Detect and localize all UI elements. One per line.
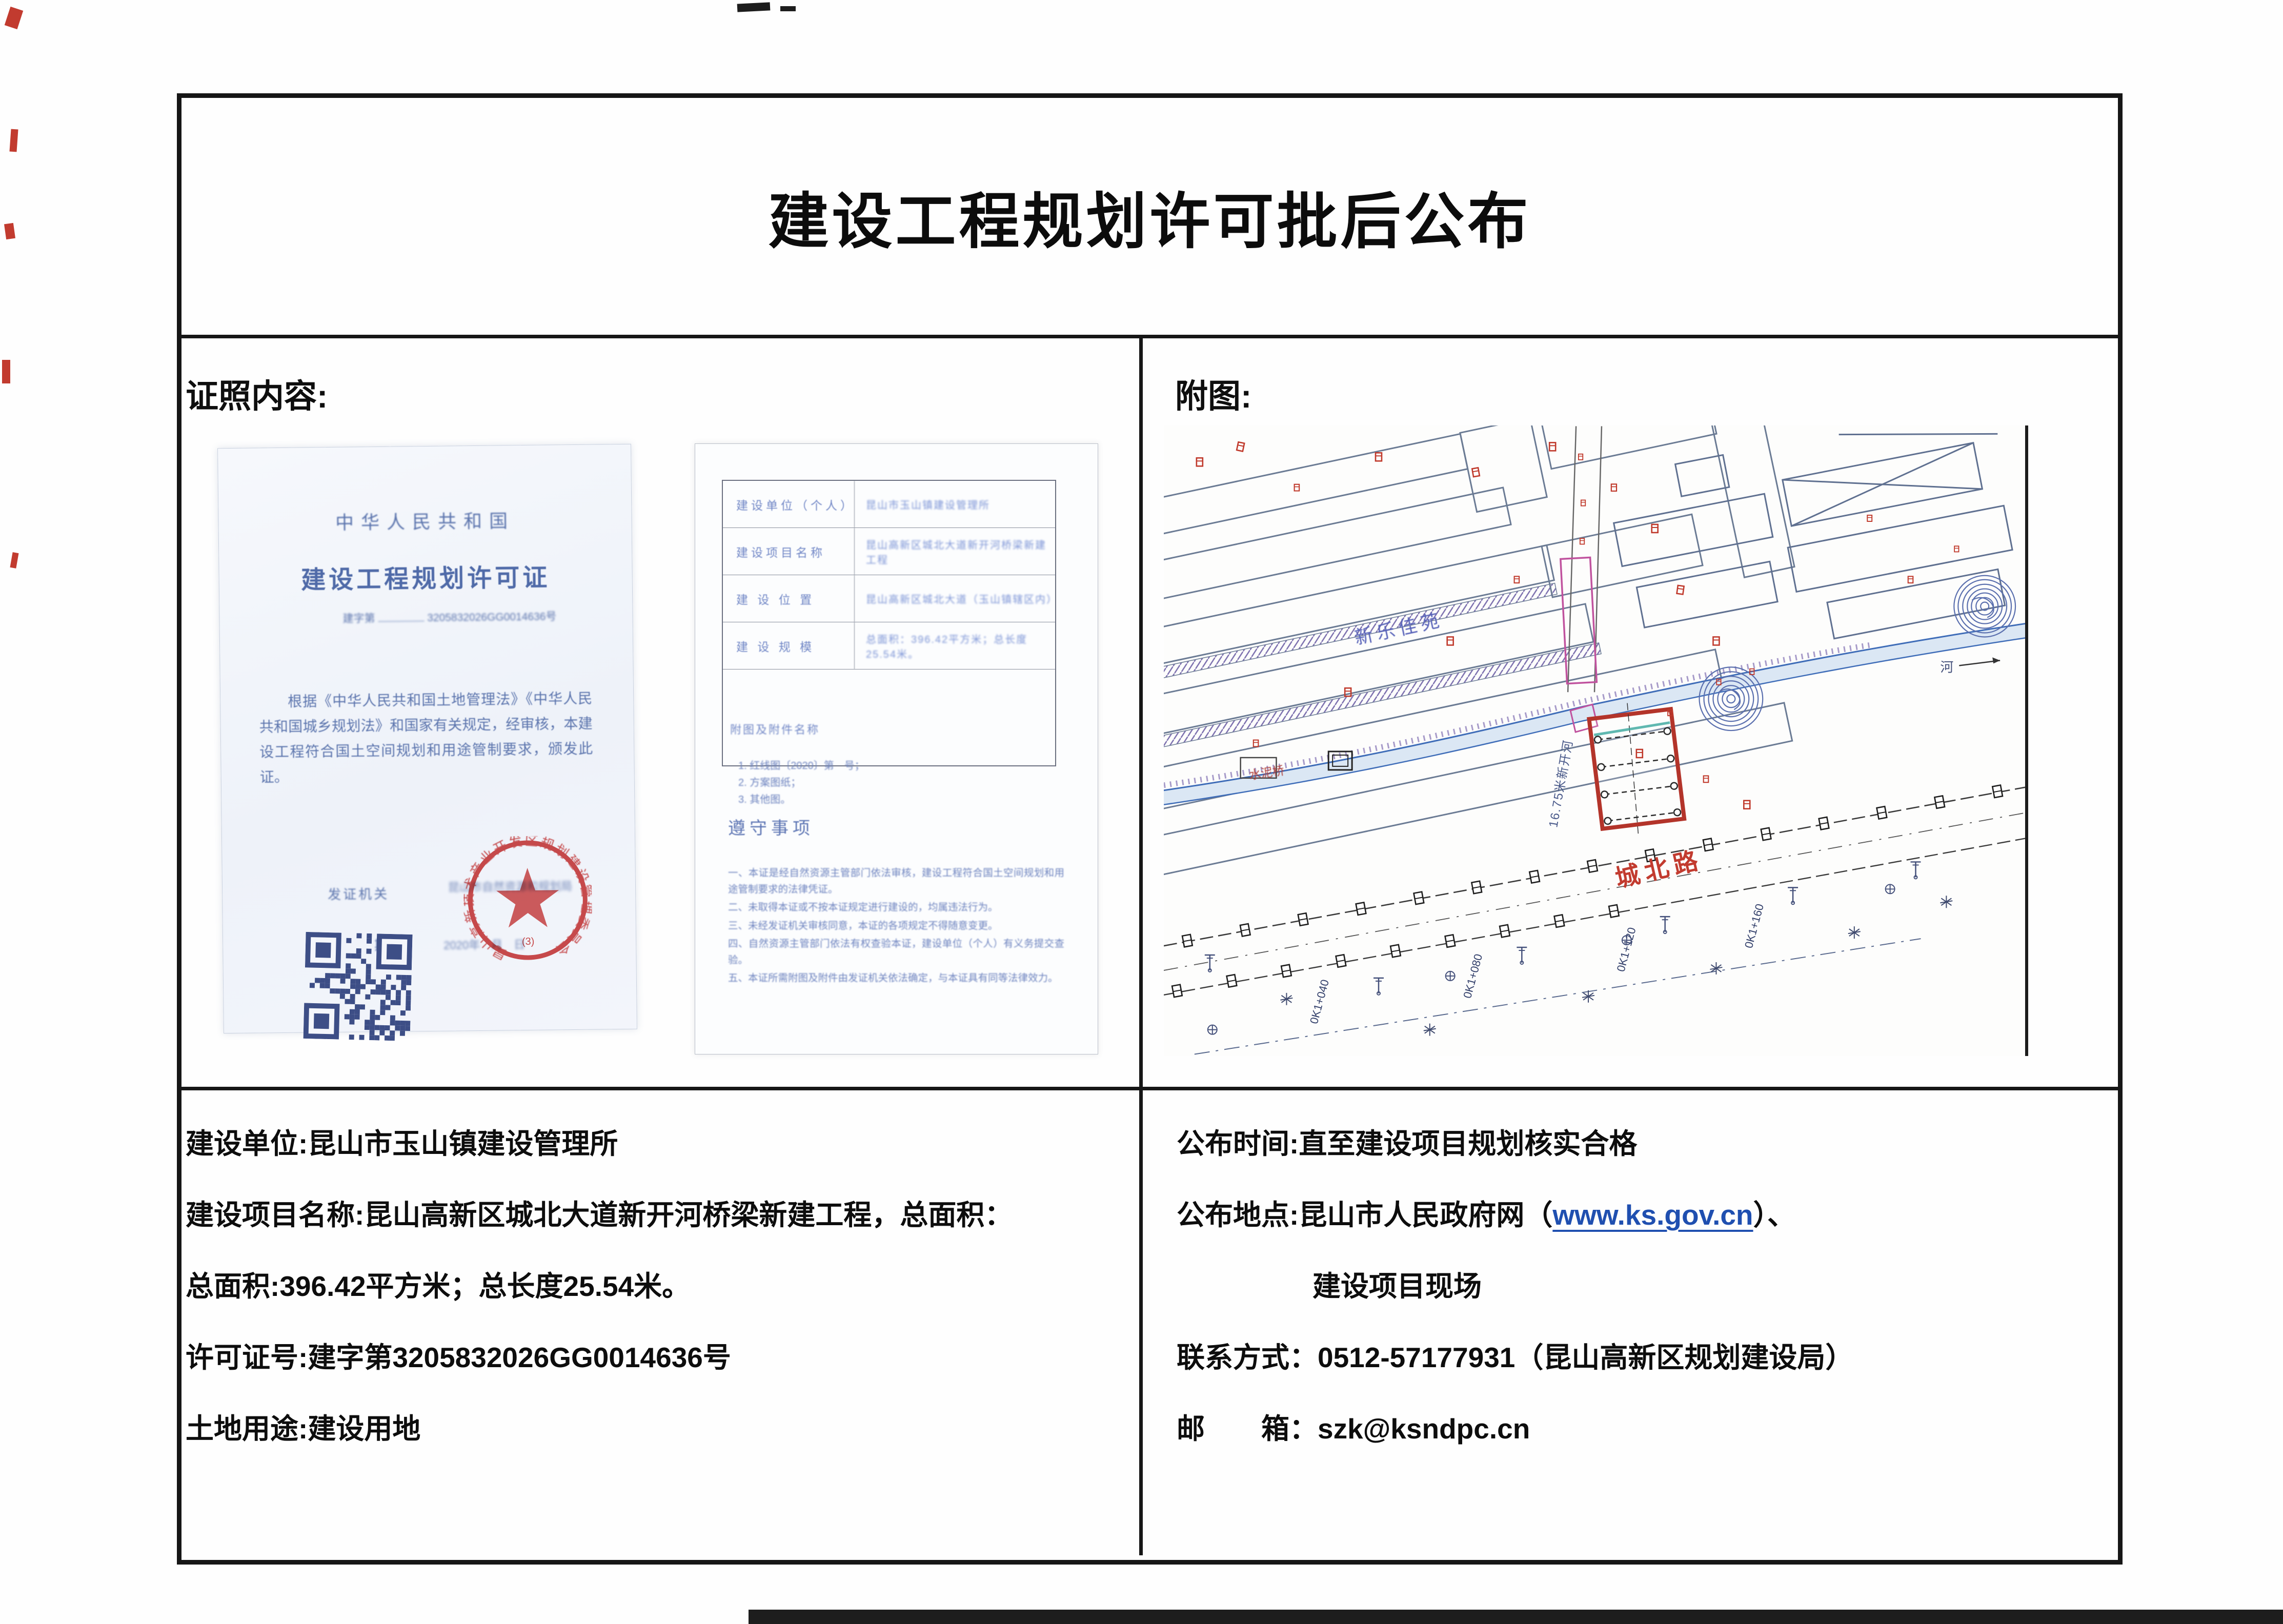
contact-line: 联系方式：0512-57177931（昆山高新区规划建设局） [1177,1334,1853,1375]
publication-info-block: 公布时间:直至建设项目规划核实合格 公布地点:昆山市人民政府网（www.ks.g… [1177,1121,1853,1477]
planning-permit-cover: 中华人民共和国 建设工程规划许可证 建字第 3205832026GG001463… [217,444,637,1033]
table-row: 建设单位（个人） 昆山市玉山镇建设管理所 [723,481,1055,528]
permit-body-text: 根据《中华人民共和国土地管理法》《中华人民共和国城乡规划法》和国家有关规定，经审… [259,686,593,790]
official-seal-icon: 昆山高新技术产业开发区规划建设管理委员会 (3) [463,836,593,965]
row-value: 总面积：396.42平方米；总长度25.54米。 [855,622,1055,669]
compliance-item: 三、未经发证机关审核同意，本证的各项规定不得随意变更。 [728,918,1064,935]
project-site-outline [1588,698,1686,840]
row-value: 昆山高新区城北大道（玉山镇辖区内） [855,575,1055,622]
guardrail-posts [1172,905,1619,997]
page-title: 建设工程规划许可批后公布 [177,100,2123,331]
section-header-license: 证照内容: [186,370,328,417]
road-name-label: 城北路 [1613,846,1706,893]
permit-title: 建设工程规划许可证 [219,556,632,596]
contour-spiral [1954,576,2015,637]
gov-website-link[interactable]: www.ks.gov.cn [1552,1199,1753,1231]
compliance-item: 五、本证所需附图及附件由发证机关依法确定，与本证具有同等法律效力。 [728,970,1064,987]
divider [177,1087,2118,1090]
chainage-label: 0K1+040 [1307,978,1331,1025]
chainage-label: 0K1+080 [1461,952,1485,1000]
row-label: 建 设 规 模 [723,622,855,669]
info-line: 许可证号:建字第3205832026GG0014636号 [186,1334,1013,1375]
attachment-item: 3. 其他图。 [738,791,865,808]
row-value: 昆山市玉山镇建设管理所 [855,481,1055,527]
permit-number-line: 建字第 3205832026GG0014636号 [342,608,556,625]
residential-area-label: 新乐佳苑 [1352,609,1445,648]
issuer-label: 发证机关 [328,884,389,903]
info-line: 建设项目名称:昆山高新区城北大道新开河桥梁新建工程，总面积： [186,1192,1013,1233]
scan-mark [737,2,771,12]
utility-pole-symbols [1205,862,1921,994]
publish-place-pre: 公布地点:昆山市人民政府网（ [1177,1199,1552,1231]
qr-code [304,932,413,1041]
site-plan-drawing: 0K1+040 0K1+080 0K1+120 0K1+160 [1164,425,2025,1056]
divider [177,335,2118,338]
compliance-item: 二、未取得本证或不按本证规定进行建设的，均属违法行为。 [728,900,1064,916]
row-label: 建 设 位 置 [723,575,855,622]
compliance-item: 一、本证是经自然资源主管部门依法审核，建设工程符合国土空间规划和用途管制要求的法… [728,865,1064,898]
guardrail-posts [1182,785,2003,947]
row-value: 昆山高新区城北大道新开河桥梁新建工程 [855,528,1055,575]
scan-ink-mark [5,7,23,29]
planning-permit-form: 建设单位（个人） 昆山市玉山镇建设管理所 建设项目名称 昆山高新区城北大道新开河… [695,443,1098,1054]
building-blocks-left [1164,425,1830,878]
row-label: 建设单位（个人） [723,481,855,527]
alignment-corridor [1561,557,1597,683]
chainage-label: 0K1+160 [1742,902,1766,949]
publish-place-post: ）、 [1753,1199,1796,1231]
scan-ink-mark [4,223,15,239]
publish-place-line2: 建设项目现场 [1177,1263,1853,1304]
publish-time-line: 公布时间:直至建设项目规划核实合格 [1177,1121,1853,1162]
divider [1139,335,1143,1555]
permit-number: 3205832026GG0014636号 [427,611,556,624]
project-info-block: 建设单位:昆山市玉山镇建设管理所 建设项目名称:昆山高新区城北大道新开河桥梁新建… [186,1121,1013,1477]
info-line: 土地用途:建设用地 [186,1406,1013,1447]
attachment-item: 1. 红线图〔2020〕第 号； [738,758,865,775]
info-line: 总面积:396.42平方米；总长度25.54米。 [186,1263,1013,1304]
announcement-page: 建设工程规划许可批后公布 证照内容: 附图: 中华人民共和国 建设工程规划许可证… [0,0,2283,1624]
river-direction-label: 河 [1940,660,1953,675]
attachment-item: 2. 方案图纸； [738,775,865,791]
compliance-header: 遵守事项 [728,814,814,839]
survey-marks [1197,442,1959,808]
contour-spiral [1700,667,1763,730]
site-plan-map: 0K1+040 0K1+080 0K1+120 0K1+160 [1164,425,2028,1056]
compliance-list: 一、本证是经自然资源主管部门依法审核，建设工程符合国土空间规划和用途管制要求的法… [728,865,1064,989]
table-row: 建 设 位 置 昆山高新区城北大道（玉山镇辖区内） [723,575,1055,622]
scan-ink-mark [9,129,18,152]
table-row: 建设项目名称 昆山高新区城北大道新开河桥梁新建工程 [723,528,1055,575]
scan-mark [780,6,796,11]
seal-sub-text: (3) [522,936,535,947]
permit-number-label: 建字第 [342,613,375,625]
scan-bottom-band [749,1610,2283,1624]
attachments-list: 1. 红线图〔2020〕第 号； 2. 方案图纸； 3. 其他图。 [738,758,865,808]
attachments-header: 附图及附件名称 [730,721,820,737]
chainage-label: 0K1+120 [1614,926,1639,973]
compliance-item: 四、自然资源主管部门依法有权查验本证，建设单位（个人）有义务提交查验。 [728,936,1064,968]
publish-place-line: 公布地点:昆山市人民政府网（www.ks.gov.cn）、 [1177,1192,1853,1233]
info-line: 建设单位:昆山市玉山镇建设管理所 [186,1121,1013,1162]
scan-ink-mark [2,360,10,383]
permit-country: 中华人民共和国 [218,505,632,536]
section-header-map: 附图: [1175,370,1251,417]
scan-ink-mark [10,552,18,569]
row-label: 建设项目名称 [723,528,855,575]
table-row: 建 设 规 模 总面积：396.42平方米；总长度25.54米。 [723,622,1055,669]
email-line: 邮 箱：szk@ksndpc.cn [1177,1406,1853,1447]
